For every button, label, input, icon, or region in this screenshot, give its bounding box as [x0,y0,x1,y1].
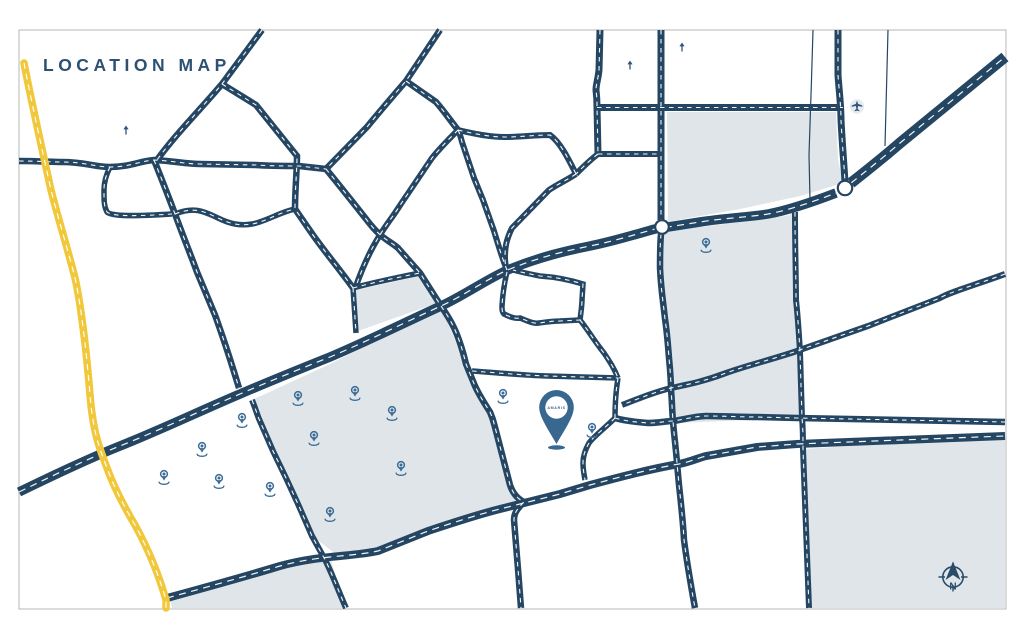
svg-text:N: N [949,582,956,593]
svg-text:LOCATION MAP: LOCATION MAP [43,55,231,75]
svg-text:AMARIS: AMARIS [547,406,565,410]
